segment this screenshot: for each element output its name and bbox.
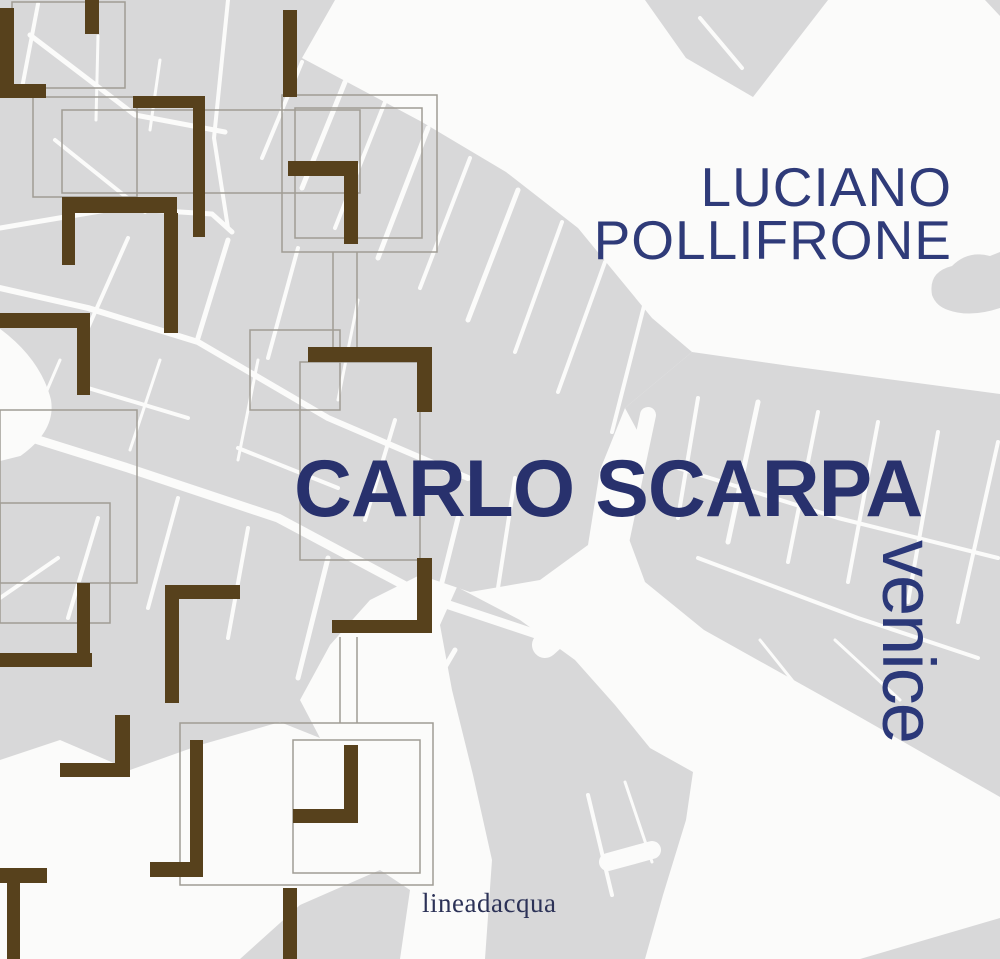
author-line-2: POLLIFRONE [594,214,952,267]
subtitle-vertical: venice [872,540,944,742]
publisher-logotype: lineadacqua [422,890,556,917]
book-cover: LUCIANO POLLIFRONE CARLO SCARPA venice l… [0,0,1000,959]
book-title: CARLO SCARPA [294,449,922,530]
author-line-1: LUCIANO [594,161,952,214]
author-name: LUCIANO POLLIFRONE [594,161,952,267]
